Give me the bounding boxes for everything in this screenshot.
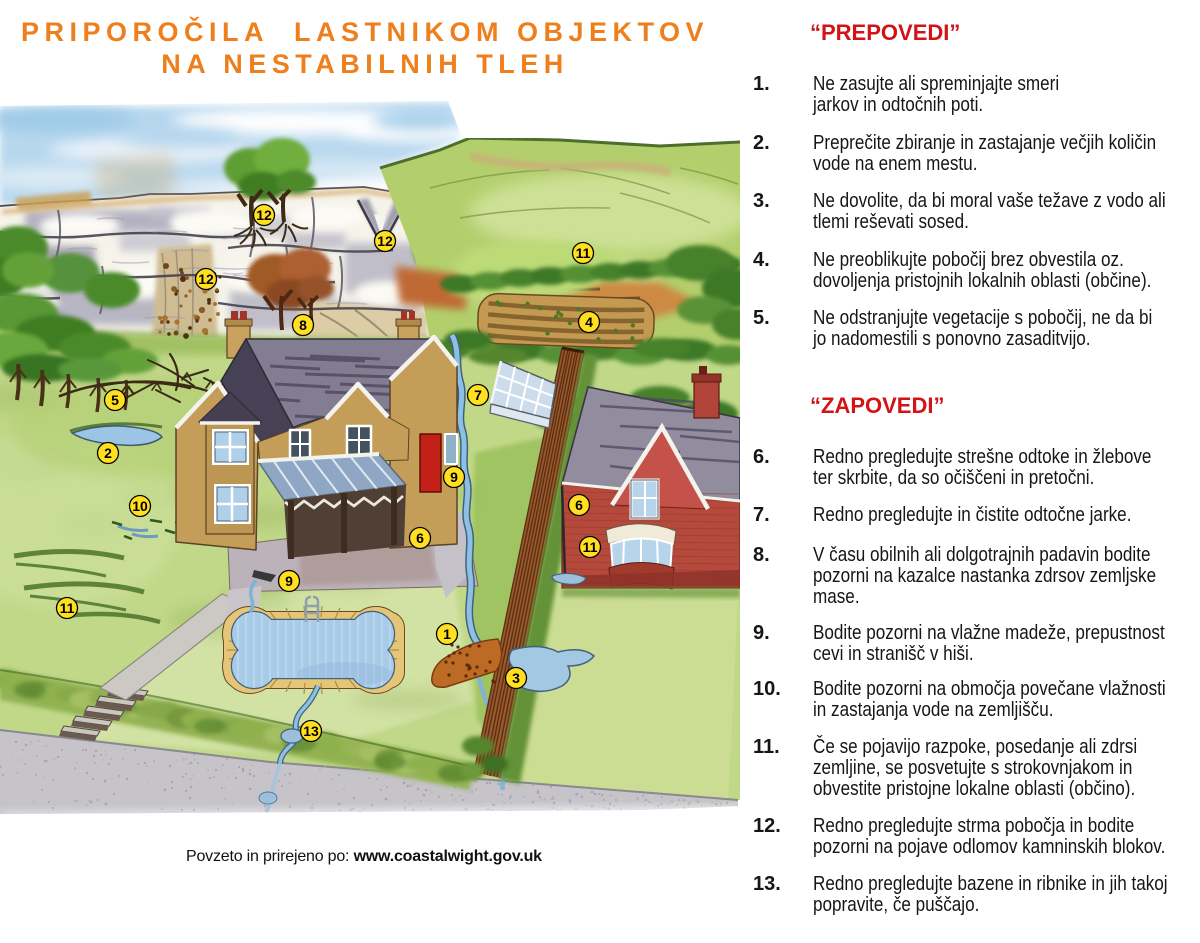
svg-text:1: 1	[443, 626, 451, 642]
svg-text:11: 11	[583, 539, 598, 555]
svg-text:9: 9	[450, 469, 458, 485]
svg-text:13: 13	[303, 723, 319, 739]
svg-text:8: 8	[299, 317, 307, 333]
svg-text:6: 6	[575, 497, 583, 513]
svg-text:3: 3	[512, 670, 520, 686]
svg-text:2: 2	[104, 445, 112, 461]
svg-text:10: 10	[132, 498, 148, 514]
svg-text:9: 9	[285, 573, 293, 589]
svg-text:12: 12	[256, 207, 272, 223]
svg-text:11: 11	[576, 245, 591, 261]
svg-text:12: 12	[198, 271, 214, 287]
svg-text:6: 6	[416, 530, 424, 546]
svg-text:4: 4	[585, 314, 593, 330]
svg-text:5: 5	[111, 392, 119, 408]
svg-text:11: 11	[60, 600, 75, 616]
svg-text:12: 12	[377, 233, 393, 249]
svg-text:7: 7	[474, 387, 482, 403]
